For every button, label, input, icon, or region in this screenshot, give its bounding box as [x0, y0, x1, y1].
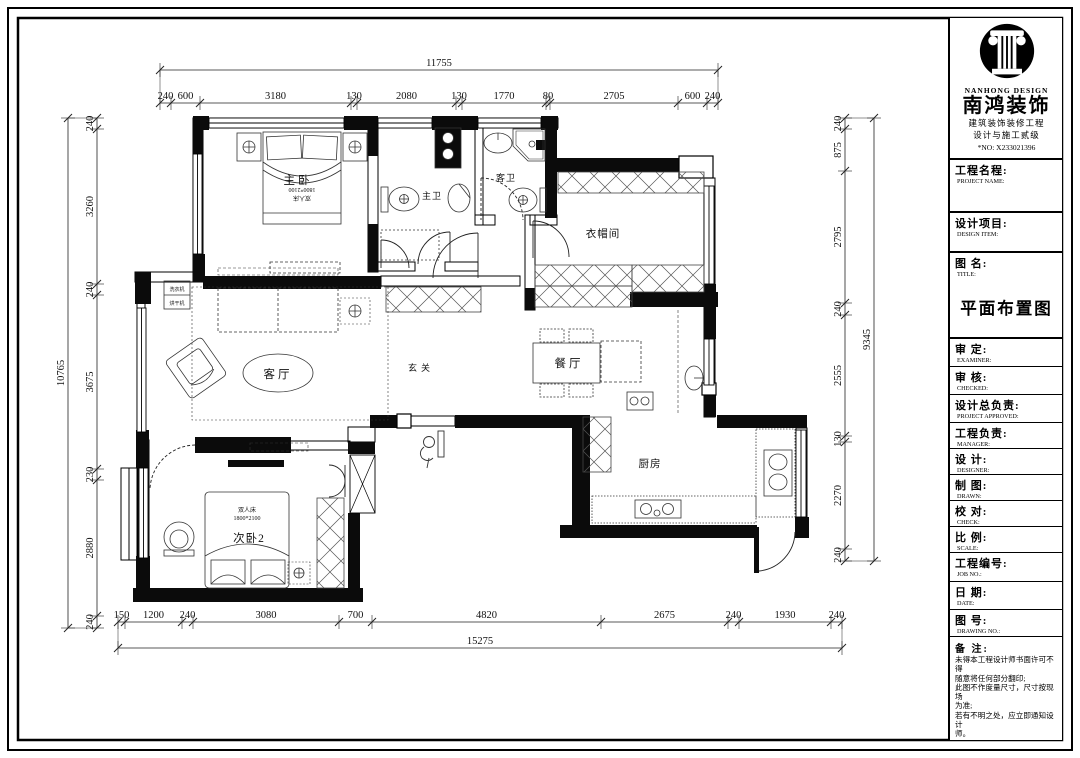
svg-text:2705: 2705 [604, 91, 625, 102]
svg-text:3260: 3260 [85, 196, 96, 217]
dryer-label: 烘干机 [169, 300, 184, 307]
company-logo-block: NANHONG DESIGN 南鸿装饰 建筑装饰装修工程 设计与施工贰级 *NO… [950, 18, 1062, 160]
kitchen-sink [764, 450, 792, 496]
living-rug [192, 287, 388, 420]
svg-text:3675: 3675 [85, 372, 96, 393]
svg-text:15275: 15275 [467, 636, 493, 647]
stove [635, 500, 681, 518]
note-line: 师。 [955, 729, 1058, 738]
title-field: 工程编号:JOB NO.: [950, 553, 1062, 582]
svg-text:2795: 2795 [833, 227, 844, 248]
bedroom2-chair [164, 522, 194, 556]
master-bath-vanity [435, 128, 461, 168]
cloak-top-closet [558, 172, 704, 193]
svg-text:1770: 1770 [494, 91, 515, 102]
small-hob [627, 392, 653, 410]
title-field: 设计总负责:PROJECT APPROVED: [950, 395, 1062, 423]
svg-text:9345: 9345 [862, 329, 873, 350]
hall-closet [386, 287, 481, 312]
svg-text:2675: 2675 [654, 610, 675, 621]
master-tv-cabinet [270, 262, 340, 273]
title-field: 图 号:DRAWING NO.: [950, 610, 1062, 637]
cert-line-1: 建筑装饰装修工程 [955, 118, 1058, 129]
armchair [165, 337, 227, 400]
notes-block: 备 注: 未得本工程设计师书面许可不得随意将任何部分翻印;此图不作度量尺寸，尺寸… [950, 637, 1062, 740]
label-master-bath: 主卫 [422, 190, 442, 201]
svg-text:客厅: 客厅 [264, 367, 293, 381]
cloakroom-door [533, 221, 569, 258]
svg-text:240: 240 [180, 610, 196, 621]
title-field: 审 定:EXAMINER: [950, 339, 1062, 367]
title-field: 工程负责:MANAGER: [950, 423, 1062, 449]
label-master: 主卧 [284, 174, 313, 187]
cert-no: *NO: X233021396 [955, 143, 1058, 152]
svg-text:230: 230 [85, 467, 96, 483]
svg-text:2080: 2080 [396, 91, 417, 102]
curtain-box [218, 268, 338, 275]
title-field: 设 计:DESIGNER: [950, 449, 1062, 475]
svg-text:240: 240 [833, 301, 844, 317]
master-nightstand-right [343, 133, 367, 161]
title-block-fields: 审 定:EXAMINER:审 核:CHECKED:设计总负责:PROJECT A… [950, 339, 1062, 637]
master-bath-sink [448, 184, 470, 212]
guest-bath-toilet [509, 188, 546, 212]
cloak-low-closet-2 [535, 286, 632, 307]
label-foyer: 玄关 [408, 362, 434, 373]
notes-lines: 未得本工程设计师书面许可不得随意将任何部分翻印;此图不作度量尺寸，尺寸按现场为准… [955, 655, 1058, 738]
svg-text:1200: 1200 [143, 610, 164, 621]
project-name-field: 工程名程: PROJECT NAME: [950, 160, 1062, 213]
bed2-type: 双人床 [238, 506, 256, 514]
master-bath-door [418, 232, 450, 264]
bed2-size: 1800*2100 [234, 516, 261, 522]
svg-text:1800*2100: 1800*2100 [289, 186, 316, 192]
brand-en: NANHONG DESIGN [955, 86, 1058, 95]
svg-text:11755: 11755 [426, 58, 452, 69]
svg-text:240: 240 [833, 547, 844, 563]
svg-text:3180: 3180 [265, 91, 286, 102]
sideboard [601, 341, 641, 382]
svg-text:240: 240 [85, 614, 96, 630]
title-block: NANHONG DESIGN 南鸿装饰 建筑装饰装修工程 设计与施工贰级 *NO… [948, 18, 1062, 740]
label-kitchen: 厨房 [639, 457, 662, 470]
cert-line-2: 设计与施工贰级 [955, 130, 1058, 141]
svg-text:2270: 2270 [833, 485, 844, 506]
drawing-sheet: 主卧 主卫 客卫 衣帽间 客厅 玄关 餐厅 厨房 次卧2 双人床 1800*21… [0, 0, 1080, 758]
svg-text:2555: 2555 [833, 365, 844, 386]
svg-text:600: 600 [685, 91, 701, 102]
bedroom2-wardrobe [317, 498, 344, 588]
master-door [381, 240, 409, 268]
svg-text:3080: 3080 [256, 610, 277, 621]
kitchen-exterior-door [754, 527, 795, 573]
svg-text:双人床: 双人床 [293, 194, 311, 202]
washer-label: 洗衣机 [169, 286, 184, 293]
svg-text:130: 130 [346, 91, 362, 102]
svg-text:10765: 10765 [56, 360, 67, 386]
title-field: 日 期:DATE: [950, 582, 1062, 610]
cloak-right-closet [632, 265, 704, 292]
design-item-field: 设计项目: DESIGN ITEM: [950, 213, 1062, 253]
kitchen-cabinet [583, 417, 611, 472]
svg-text:875: 875 [833, 142, 844, 158]
master-bath-shower [381, 230, 439, 260]
floor-lamp [340, 298, 370, 324]
guest-bath-door [481, 178, 523, 220]
title-field: 审 核:CHECKED: [950, 367, 1062, 395]
cloak-low-closet-1 [535, 265, 632, 286]
floor-drain [288, 562, 310, 584]
note-line: 随意将任何部分翻印; [955, 674, 1058, 683]
bedroom2-west-door [150, 445, 195, 489]
water-heater [685, 366, 703, 390]
svg-text:600: 600 [178, 91, 194, 102]
label-cloak: 衣帽间 [586, 227, 621, 240]
label-guest-bath: 客卫 [496, 172, 516, 183]
sofa [218, 288, 338, 332]
notes-disclaimer: 本设计解释权归设计师所有。 [955, 739, 1058, 740]
label-bedroom2: 次卧2 [233, 531, 265, 545]
master-nightstand-left [237, 133, 261, 161]
svg-text:80: 80 [543, 91, 554, 102]
shaft [350, 455, 375, 513]
svg-text:130: 130 [833, 431, 844, 447]
title-field: 校 对:CHECK: [950, 501, 1062, 527]
svg-text:240: 240 [829, 610, 845, 621]
svg-text:4820: 4820 [476, 610, 497, 621]
note-line: 此图不作度量尺寸，尺寸按现场 [955, 683, 1058, 702]
svg-text:700: 700 [348, 610, 364, 621]
person-figure [420, 431, 444, 468]
guest-bath-sink [484, 133, 512, 153]
drawing-title: 平面布置图 [955, 295, 1058, 319]
dining-set [533, 329, 641, 397]
note-line: 未得本工程设计师书面许可不得 [955, 655, 1058, 674]
brand-cn: 南鸿装饰 [955, 95, 1058, 117]
svg-text:240: 240 [85, 282, 96, 298]
svg-text:240: 240 [726, 610, 742, 621]
svg-text:240: 240 [833, 116, 844, 132]
label-dining: 餐厅 [555, 356, 584, 370]
master-bed-text: 双人床 1800*2100 [289, 186, 316, 202]
living-label: 客厅 [243, 354, 313, 392]
svg-text:1930: 1930 [775, 610, 796, 621]
svg-text:2880: 2880 [85, 538, 96, 559]
title-field: 制 图:DRAWN: [950, 475, 1062, 501]
title-field: 比 例:SCALE: [950, 527, 1062, 553]
kitchen-counter [592, 429, 795, 523]
svg-text:130: 130 [451, 91, 467, 102]
floor-plan-svg: 主卧 主卫 客卫 衣帽间 客厅 玄关 餐厅 厨房 次卧2 双人床 1800*21… [0, 0, 1080, 758]
bedroom2-double-door [329, 465, 345, 497]
note-line: 若有不明之处，应立即通知设计 [955, 711, 1058, 730]
note-line: 为准; [955, 701, 1058, 710]
company-logo-icon [978, 22, 1036, 80]
svg-text:150: 150 [114, 610, 130, 621]
master-bath-toilet [381, 187, 419, 212]
drawing-title-field: 图 名: TITLE: 平面布置图 [950, 253, 1062, 339]
